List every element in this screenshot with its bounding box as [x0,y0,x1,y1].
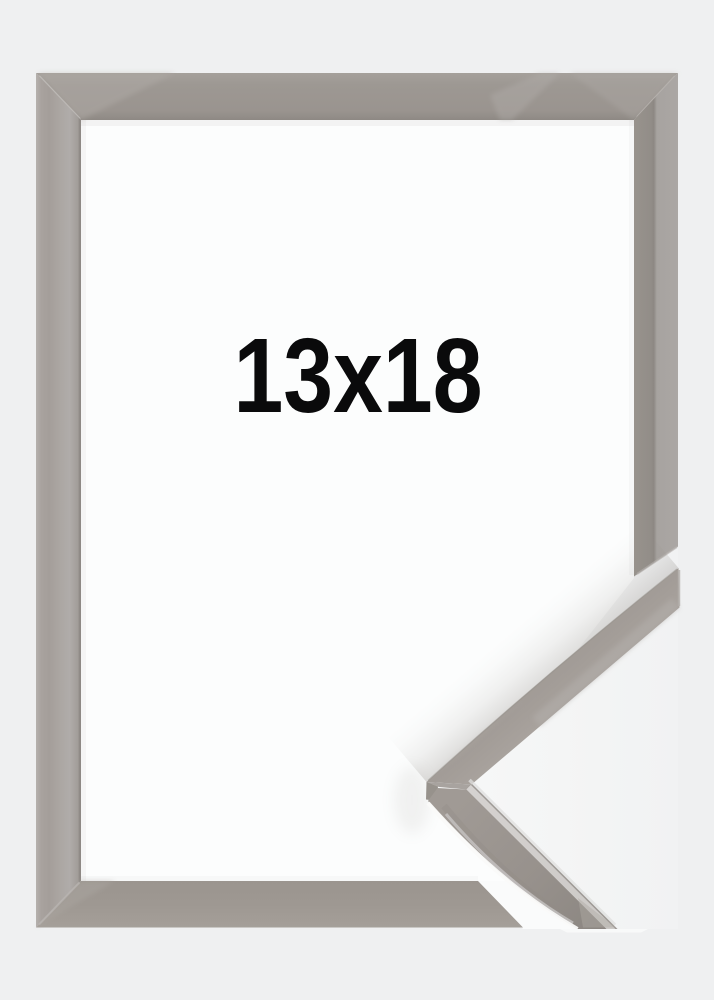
svg-text:13x18: 13x18 [234,317,483,435]
